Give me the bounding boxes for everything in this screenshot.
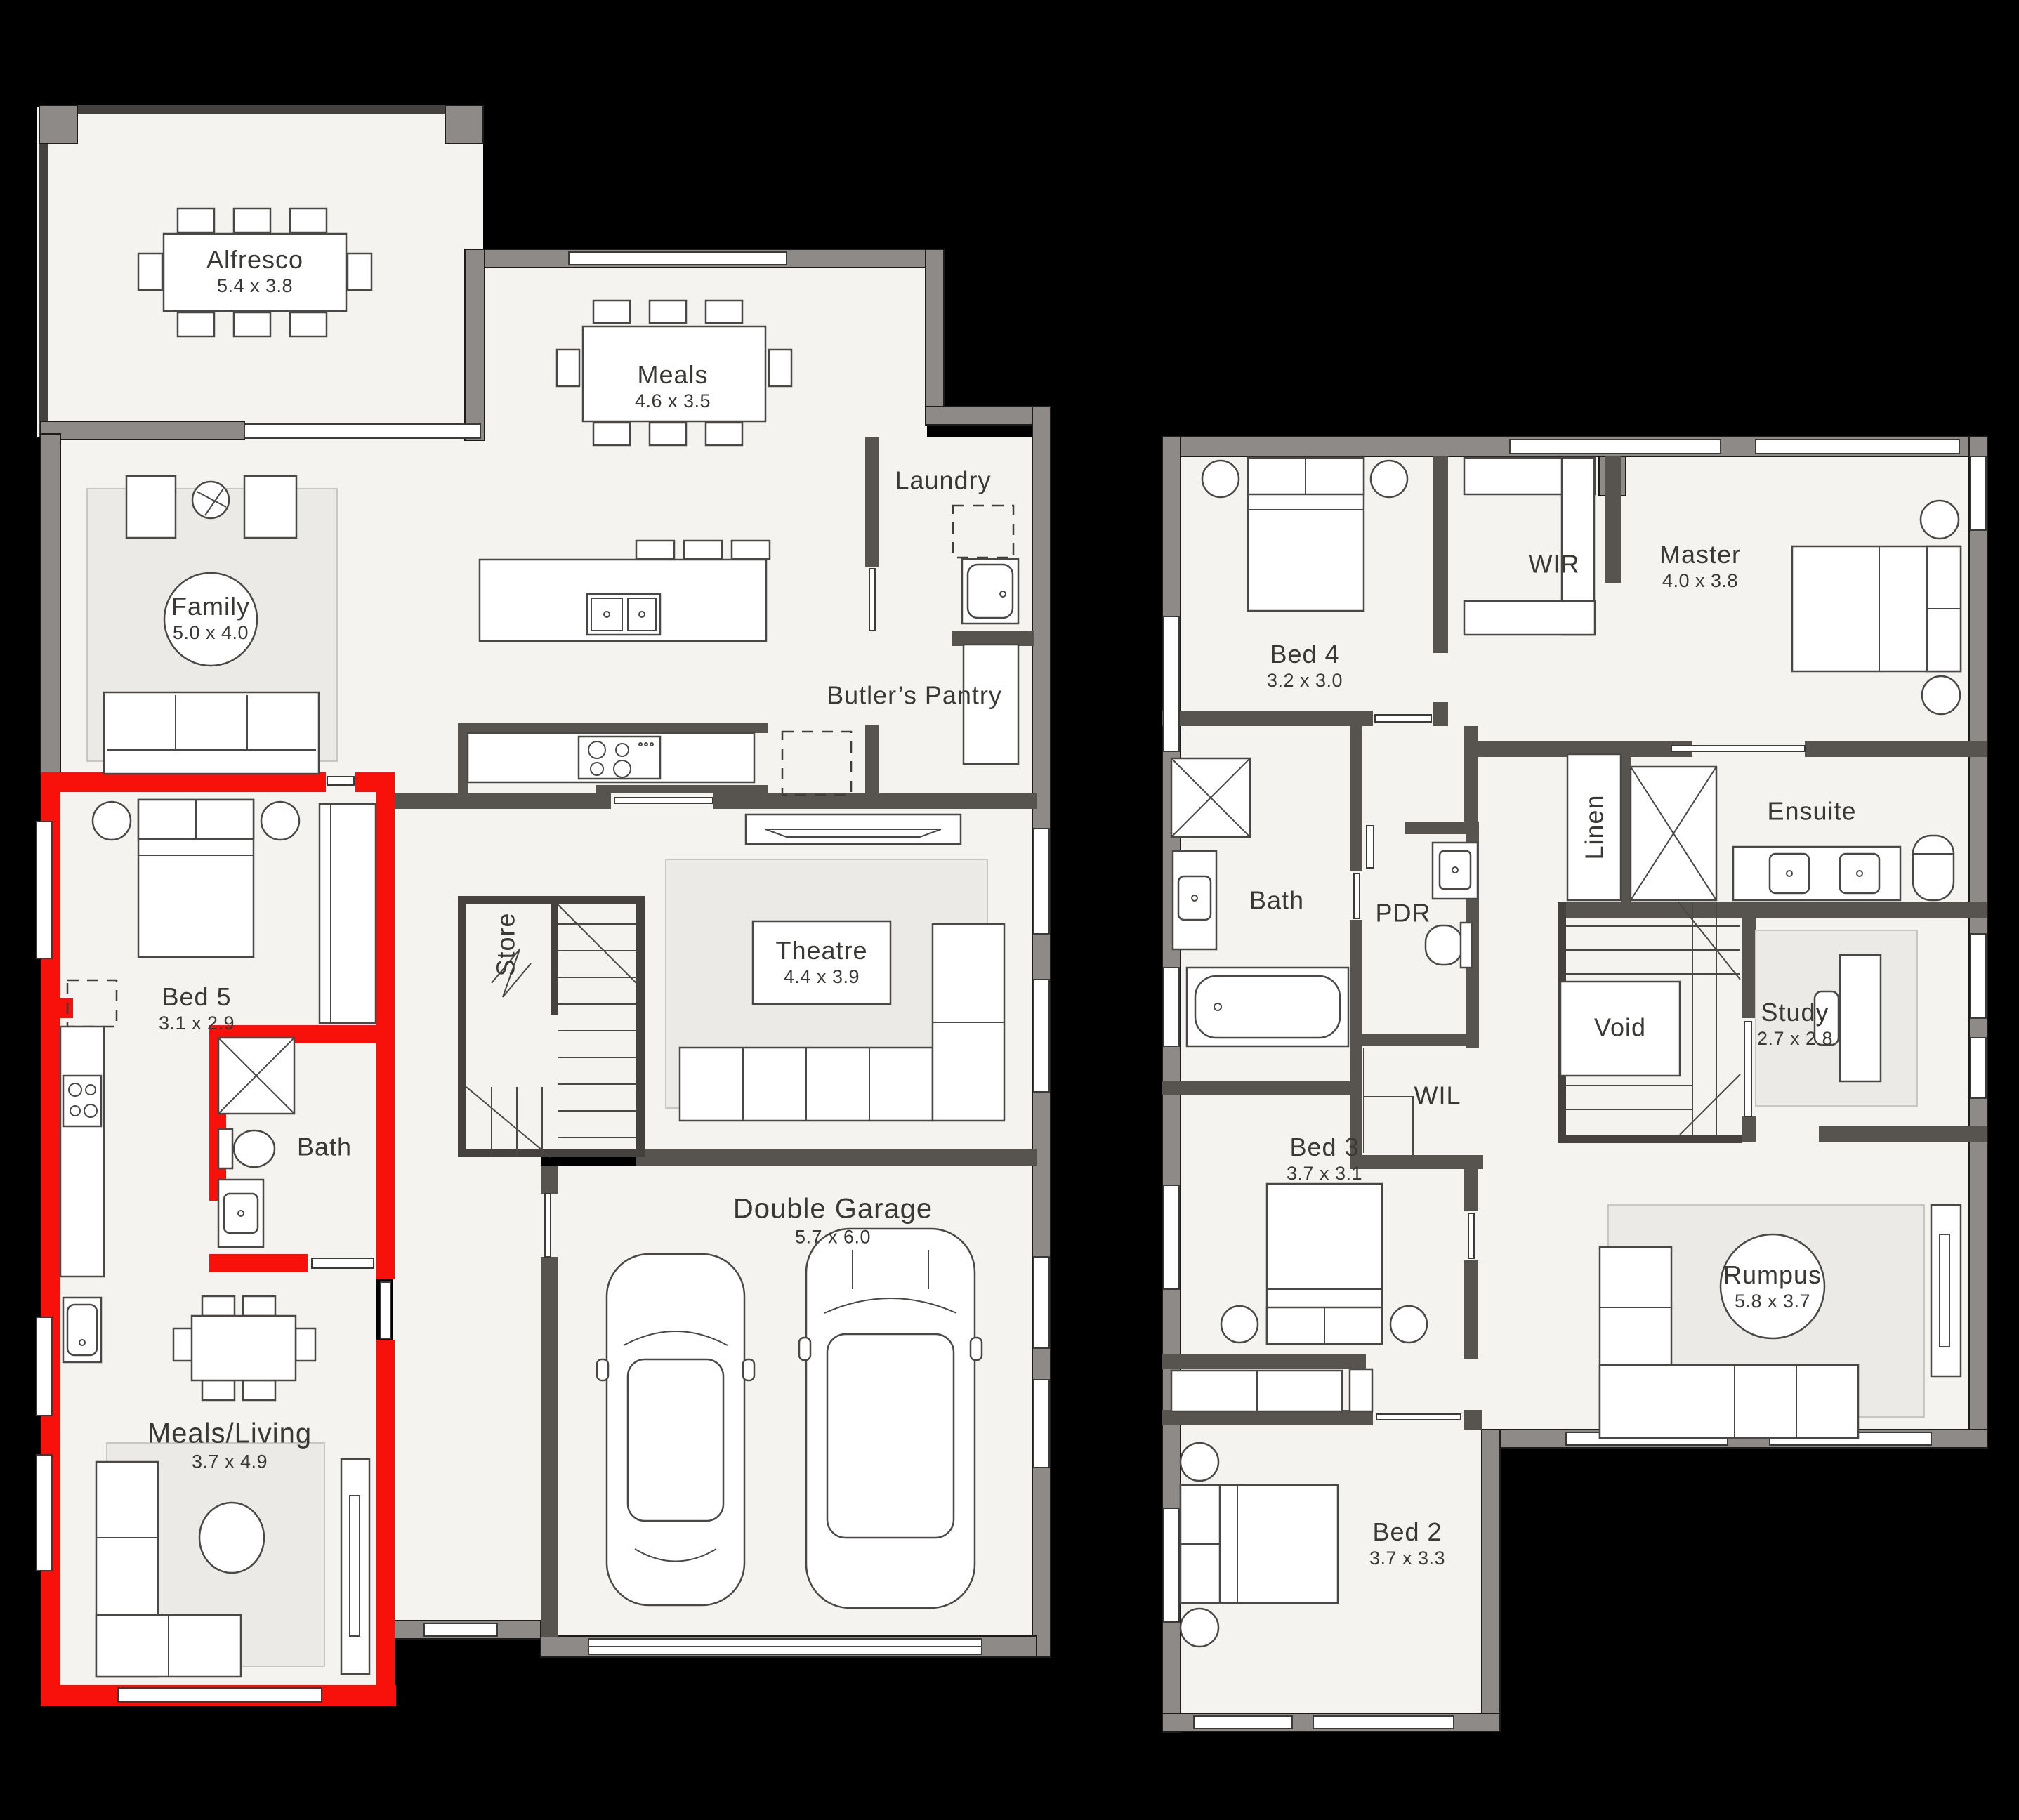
room-label-master: Master 4.0 x 3.8 [1659, 540, 1741, 592]
room-label-theatre: Theatre 4.4 x 3.9 [775, 936, 867, 988]
room-label-bed4: Bed 4 3.2 x 3.0 [1267, 640, 1343, 692]
room-label-rumpus: Rumpus 5.8 x 3.7 [1723, 1260, 1822, 1312]
first-floor [1162, 437, 1987, 1732]
room-label-wir: WIR [1529, 549, 1580, 578]
garage-car-suv [799, 1229, 982, 1608]
room-label-alfresco: Alfresco 5.4 x 3.8 [206, 245, 303, 297]
garage-car-sports [597, 1254, 754, 1605]
room-label-meals-living: Meals/Living 3.7 x 4.9 [147, 1417, 312, 1472]
room-label-pdr: PDR [1375, 898, 1431, 927]
room-label-bed2: Bed 2 3.7 x 3.3 [1369, 1517, 1445, 1569]
room-label-wil: WIL [1414, 1081, 1461, 1109]
room-label-meals: Meals 4.6 x 3.5 [635, 360, 711, 412]
rumpus-furniture [1600, 1205, 1961, 1438]
room-label-ensuite: Ensuite [1767, 796, 1856, 825]
room-label-study: Study 2.7 x 2.8 [1757, 998, 1833, 1050]
room-label-double-garage: Double Garage 5.7 x 6.0 [733, 1192, 933, 1248]
room-label-bath-first: Bath [1249, 885, 1304, 914]
room-label-family: Family 5.0 x 4.0 [171, 592, 250, 644]
room-label-bed5: Bed 5 3.1 x 2.9 [159, 982, 235, 1034]
room-label-bed3: Bed 3 3.7 x 3.1 [1287, 1133, 1362, 1185]
room-label-bath-ground: Bath [297, 1132, 352, 1161]
floorplan-canvas: Alfresco 5.4 x 3.8 Meals 4.6 x 3.5 Laund… [0, 0, 2019, 1820]
room-label-laundry: Laundry [895, 466, 991, 494]
room-label-linen: Linen [1579, 794, 1608, 859]
room-label-void: Void [1594, 1013, 1646, 1041]
room-label-butlers-pantry: Butler’s Pantry [827, 680, 1002, 709]
room-label-store: Store [491, 912, 520, 976]
